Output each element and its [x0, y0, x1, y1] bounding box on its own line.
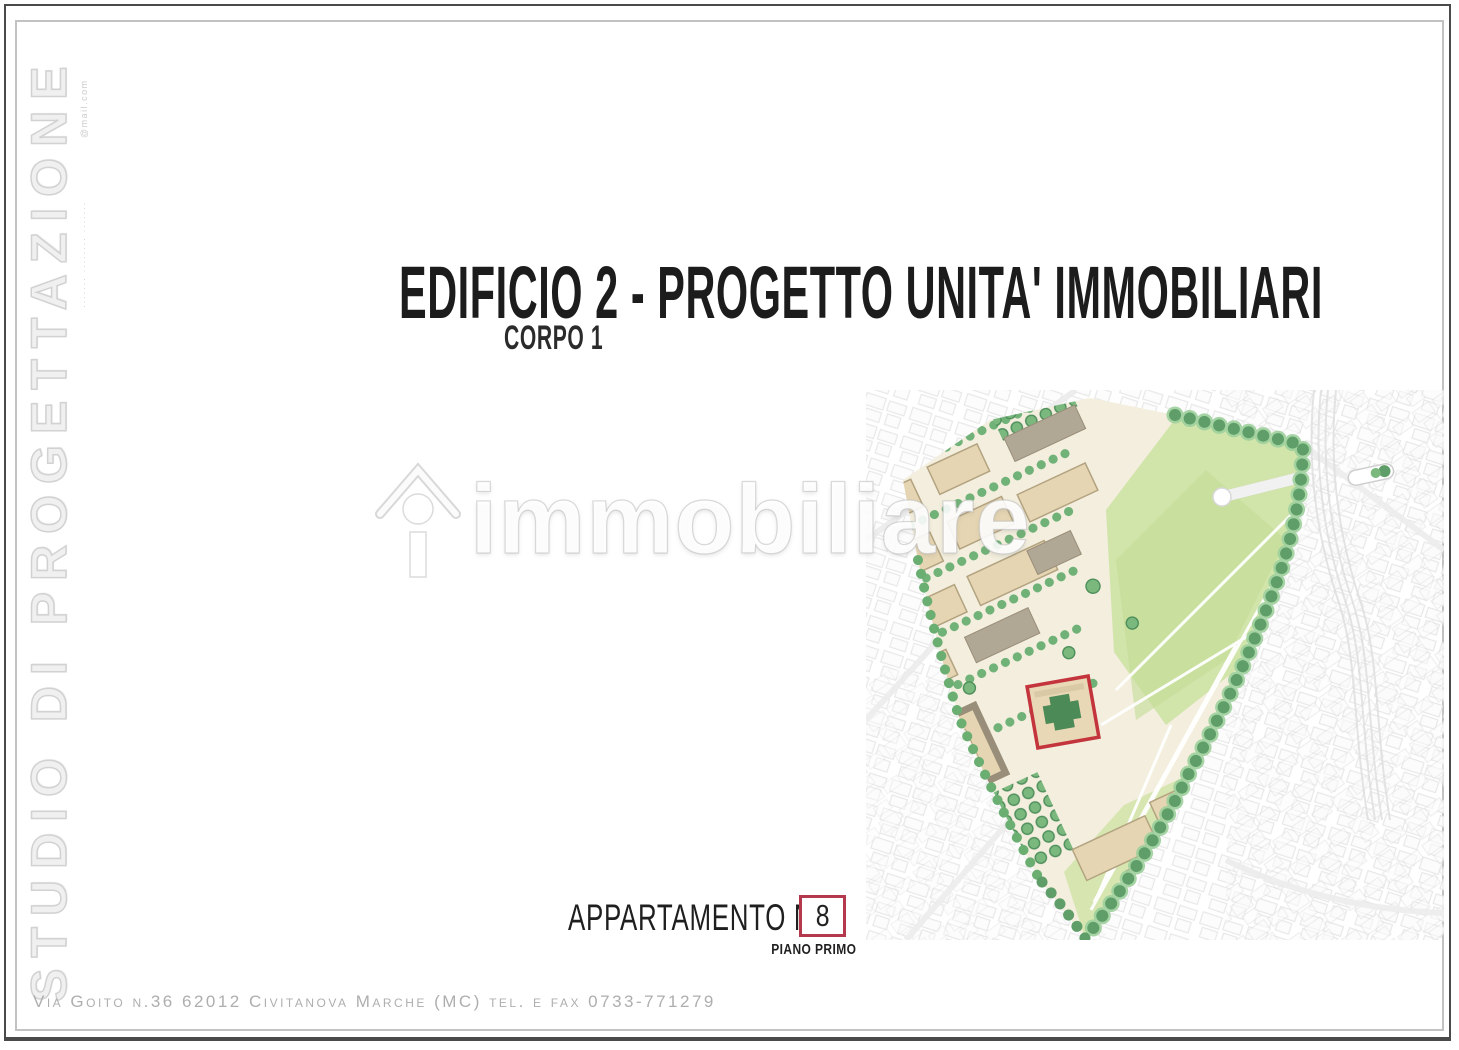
site-plan-svg	[866, 390, 1444, 940]
page-subtitle: CORPO 1	[504, 319, 603, 358]
apartment-number: 8	[816, 898, 830, 934]
studio-contact-small-upper: @mail.com	[79, 79, 89, 138]
studio-vertical-title: STUDIO DI PROGETTAZIONE	[20, 54, 78, 1002]
apartment-number-box: 8	[799, 895, 846, 937]
drawing-sheet: STUDIO DI PROGETTAZIONE @mail.com ······…	[0, 0, 1459, 1050]
apartment-floor-label: PIANO PRIMO	[771, 941, 856, 958]
site-plan-map	[866, 390, 1444, 940]
studio-contact-small-lower: ······· ········ ·······	[79, 201, 89, 308]
apartment-label: APPARTAMENTO N.	[568, 897, 821, 939]
highlighted-building	[1027, 676, 1099, 748]
footer-address: Via Goito n.36 62012 Civitanova Marche (…	[33, 992, 716, 1012]
house-icon	[372, 452, 464, 582]
